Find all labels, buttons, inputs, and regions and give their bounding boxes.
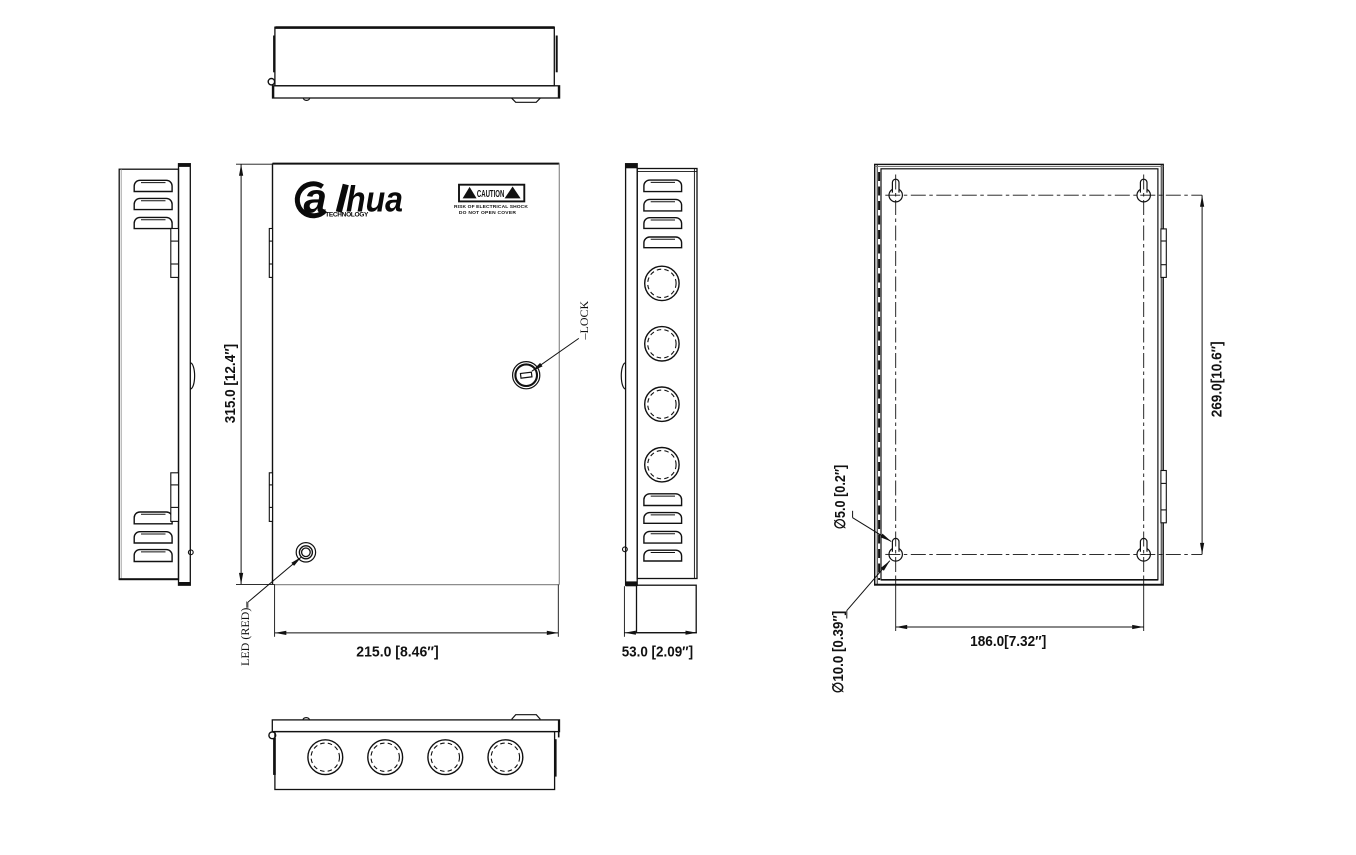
svg-text:∅10.0 [0.39″]: ∅10.0 [0.39″] — [830, 611, 847, 694]
svg-text:LED (RED)–: LED (RED)– — [238, 601, 252, 666]
svg-text:a: a — [304, 175, 327, 222]
svg-text:–LOCK: –LOCK — [577, 301, 591, 341]
svg-text:315.0 [12.4″]: 315.0 [12.4″] — [222, 344, 239, 423]
svg-text:186.0[7.32″]: 186.0[7.32″] — [970, 633, 1046, 650]
svg-text:CAUTION: CAUTION — [477, 189, 505, 200]
svg-text:215.0 [8.46″]: 215.0 [8.46″] — [356, 644, 438, 661]
svg-text:DO NOT OPEN COVER: DO NOT OPEN COVER — [459, 210, 516, 216]
svg-text:∅5.0 [0.2″]: ∅5.0 [0.2″] — [832, 465, 849, 530]
svg-text:269.0[10.6″]: 269.0[10.6″] — [1208, 341, 1225, 417]
svg-text:RISK OF ELECTRICAL SHOCK: RISK OF ELECTRICAL SHOCK — [454, 204, 528, 210]
svg-text:53.0 [2.09″]: 53.0 [2.09″] — [622, 644, 693, 661]
svg-text:TECHNOLOGY: TECHNOLOGY — [325, 212, 369, 219]
